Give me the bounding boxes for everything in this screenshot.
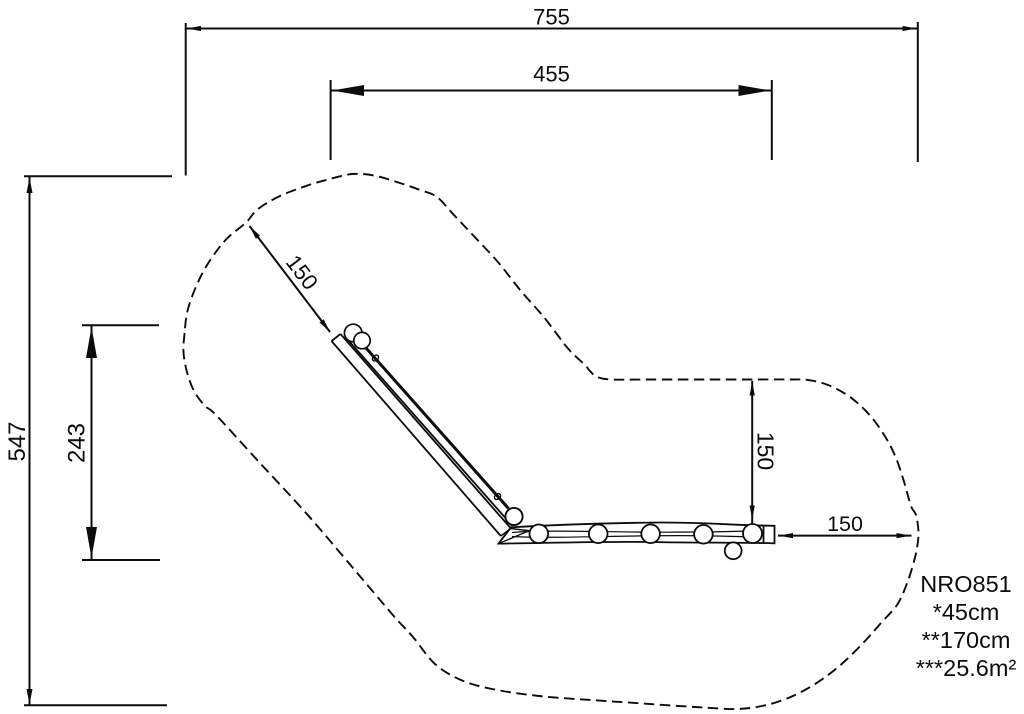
svg-text:455: 455 <box>533 62 570 87</box>
svg-text:243: 243 <box>64 423 91 463</box>
svg-text:*45cm: *45cm <box>933 599 1000 625</box>
svg-text:**170cm: **170cm <box>922 627 1011 653</box>
svg-text:150: 150 <box>827 512 863 536</box>
svg-text:150: 150 <box>753 432 779 470</box>
svg-text:***25.6m²: ***25.6m² <box>916 655 1017 681</box>
svg-text:755: 755 <box>533 5 570 30</box>
svg-text:NRO851: NRO851 <box>920 571 1011 597</box>
svg-text:547: 547 <box>4 421 31 461</box>
svg-text:150: 150 <box>281 250 323 294</box>
